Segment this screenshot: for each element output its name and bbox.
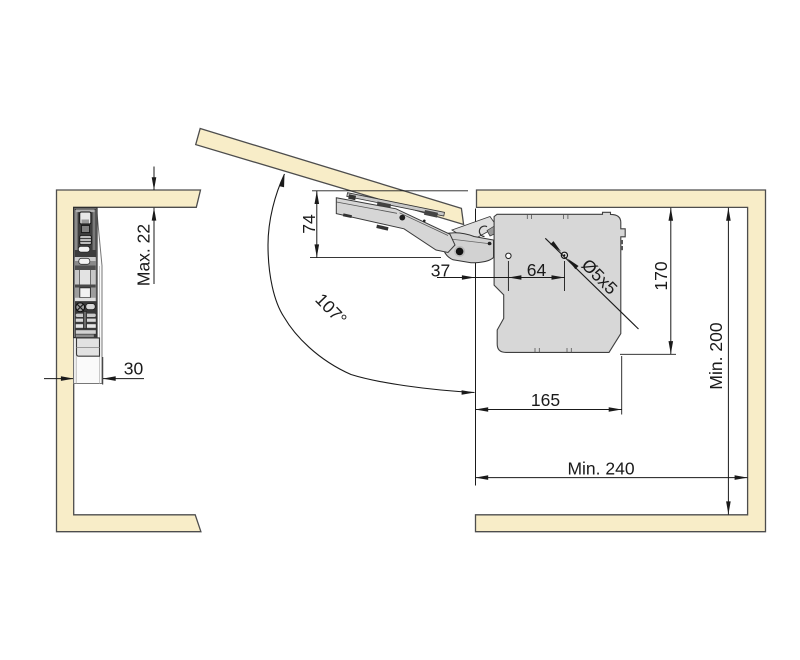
svg-text:30: 30 [124,358,144,378]
svg-text:107°: 107° [311,289,351,329]
svg-text:37: 37 [431,260,450,280]
svg-text:64: 64 [527,260,547,280]
svg-text:Min. 200: Min. 200 [706,322,726,389]
svg-text:165: 165 [531,390,560,410]
svg-text:Min. 240: Min. 240 [567,459,634,479]
svg-text:74: 74 [299,214,319,234]
svg-text:170: 170 [651,261,671,290]
svg-text:Max. 22: Max. 22 [134,224,154,286]
